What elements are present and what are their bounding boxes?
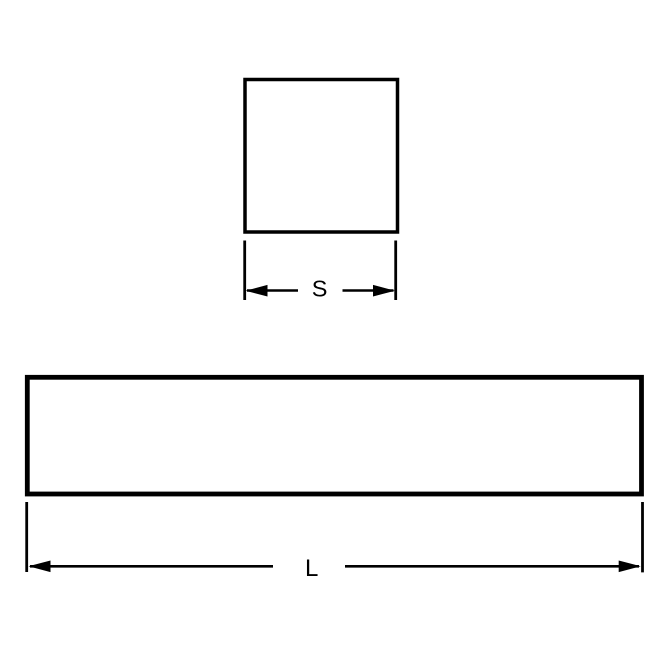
svg-text:L: L [305, 555, 318, 582]
svg-text:S: S [312, 276, 328, 302]
